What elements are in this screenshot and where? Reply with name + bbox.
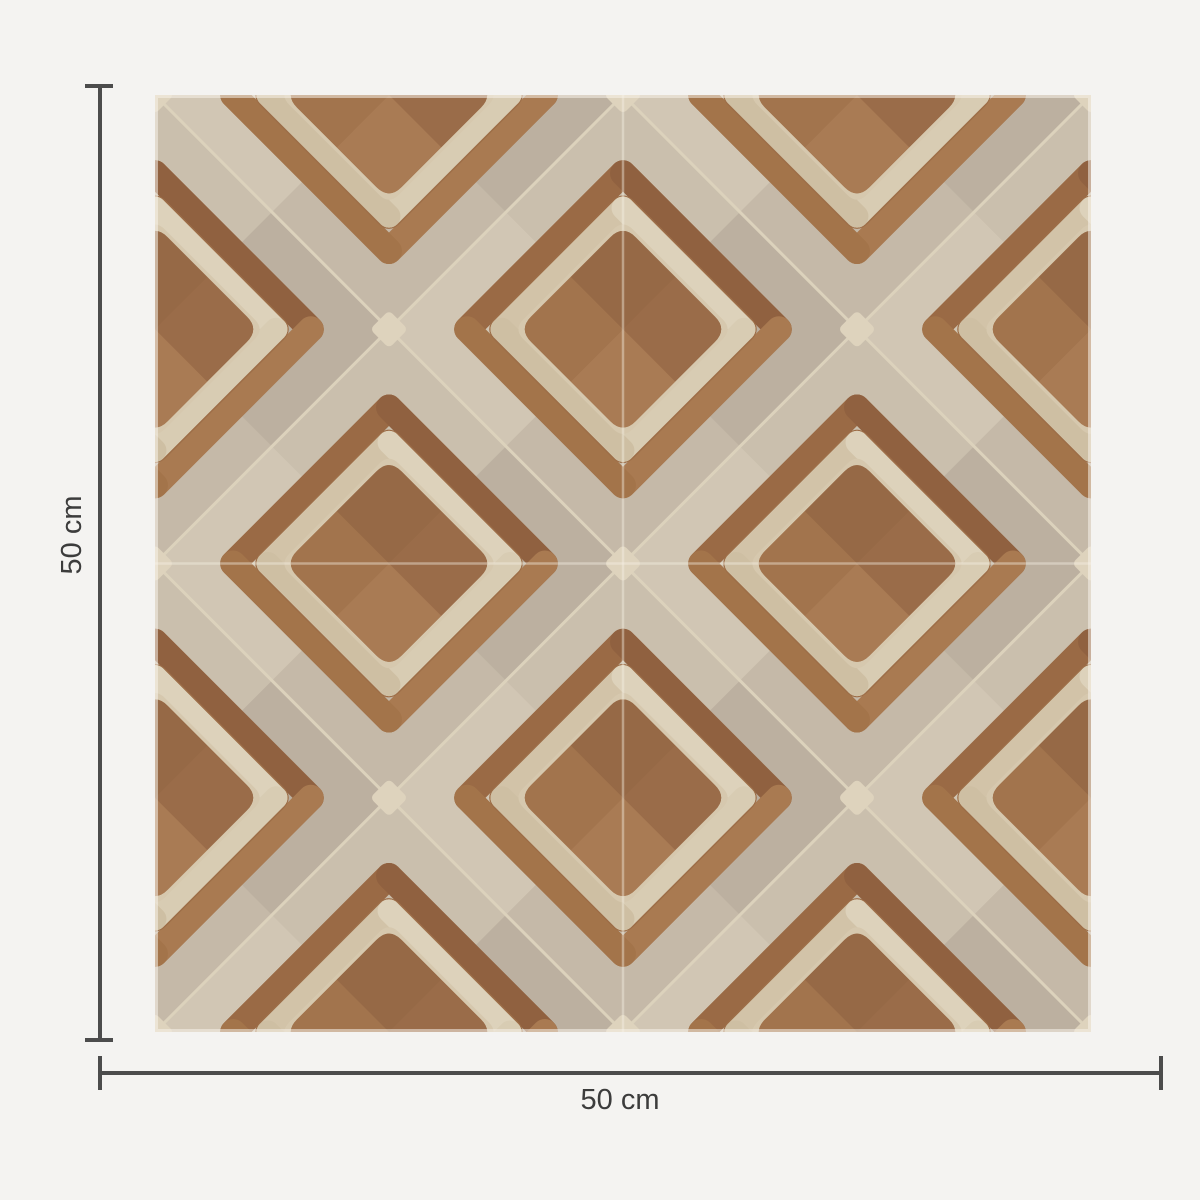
horizontal-dimension-cap-right: [1159, 1056, 1163, 1090]
vertical-dimension-line: [98, 84, 102, 1042]
vertical-dimension-cap-top: [85, 84, 113, 88]
tile-image: [155, 95, 1091, 1032]
horizontal-dimension-label: 50 cm: [550, 1080, 690, 1120]
vertical-dimension-cap-bottom: [85, 1038, 113, 1042]
vertical-dimension-label: 50 cm: [52, 465, 92, 605]
product-image-canvas: 50 cm 50 cm: [0, 0, 1200, 1200]
horizontal-dimension-line: [100, 1071, 1163, 1075]
horizontal-dimension-cap-left: [98, 1056, 102, 1090]
